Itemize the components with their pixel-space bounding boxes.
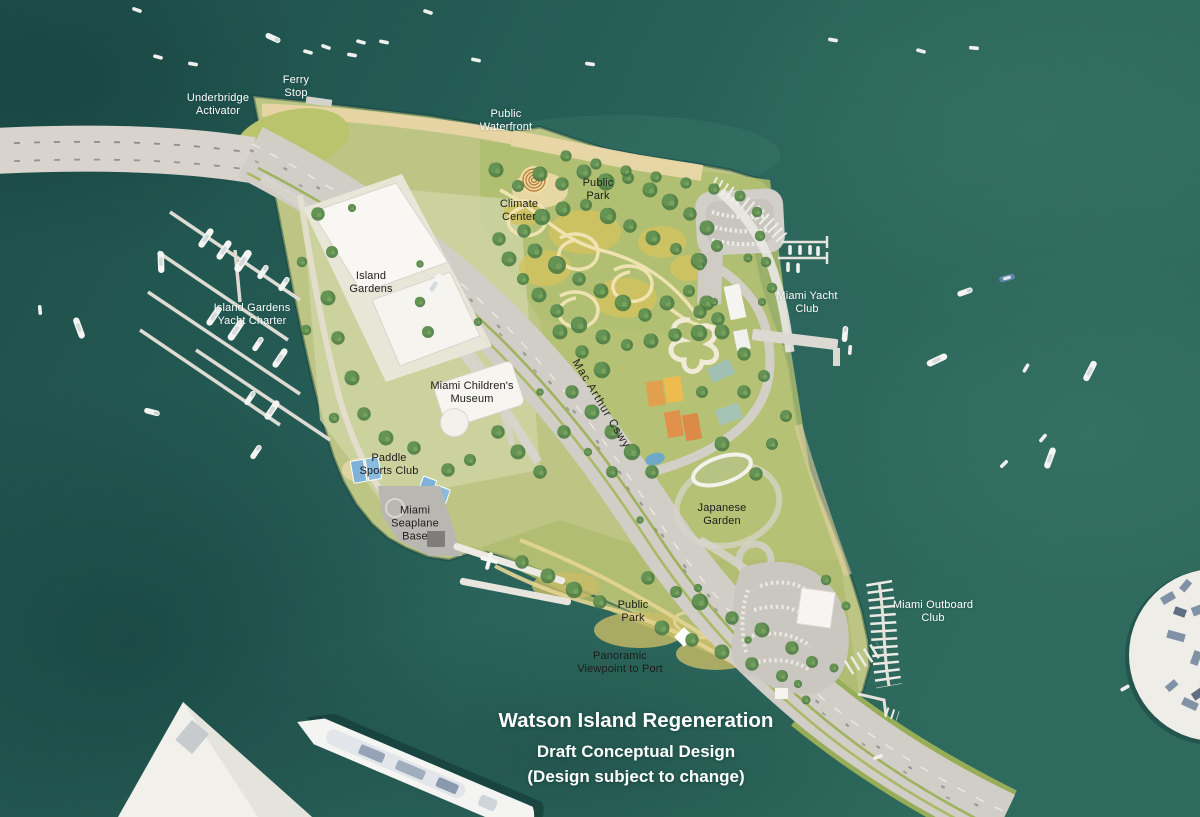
- bridge-road: [0, 149, 252, 160]
- map-artwork: [0, 0, 1200, 817]
- watson-island-map: Underbridge Activator Ferry Stop Public …: [0, 0, 1200, 817]
